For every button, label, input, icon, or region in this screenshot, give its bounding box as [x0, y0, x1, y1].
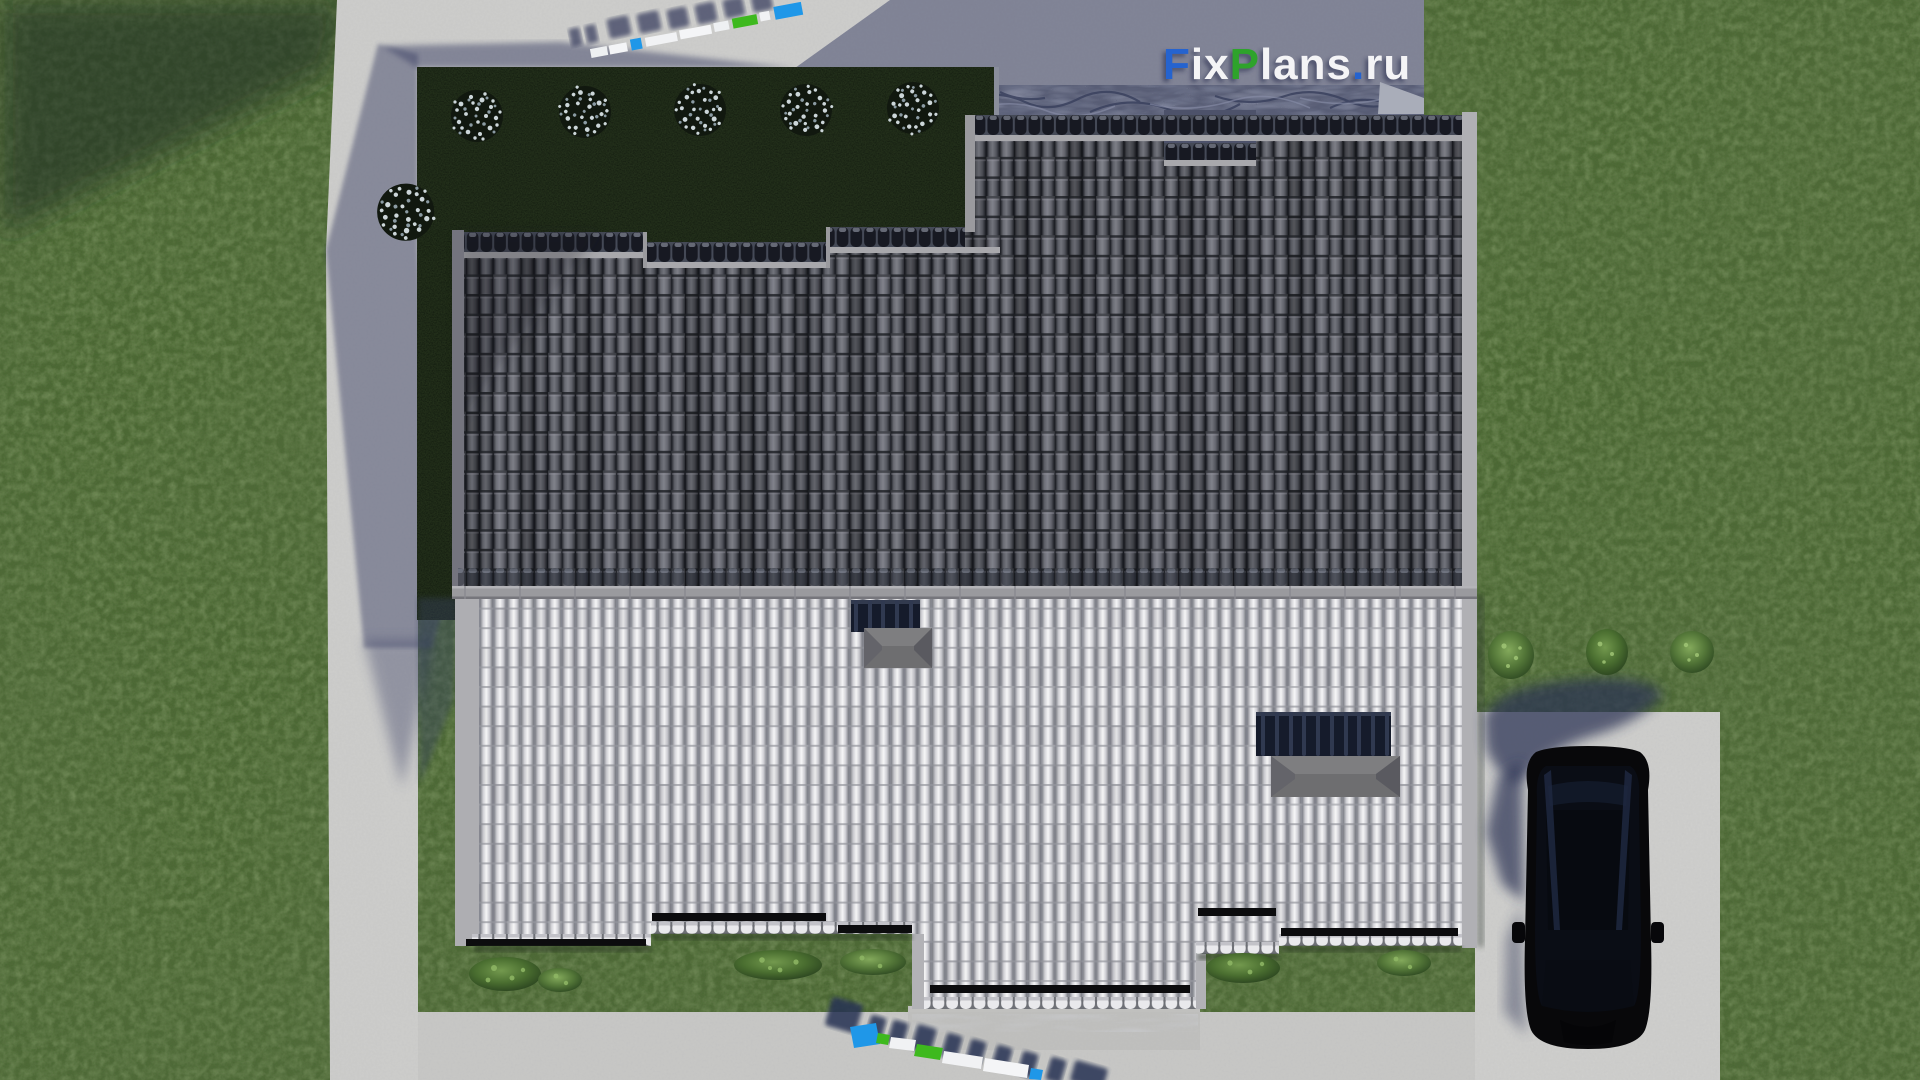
- svg-text:FixPlans.ru: FixPlans.ru: [1163, 40, 1411, 89]
